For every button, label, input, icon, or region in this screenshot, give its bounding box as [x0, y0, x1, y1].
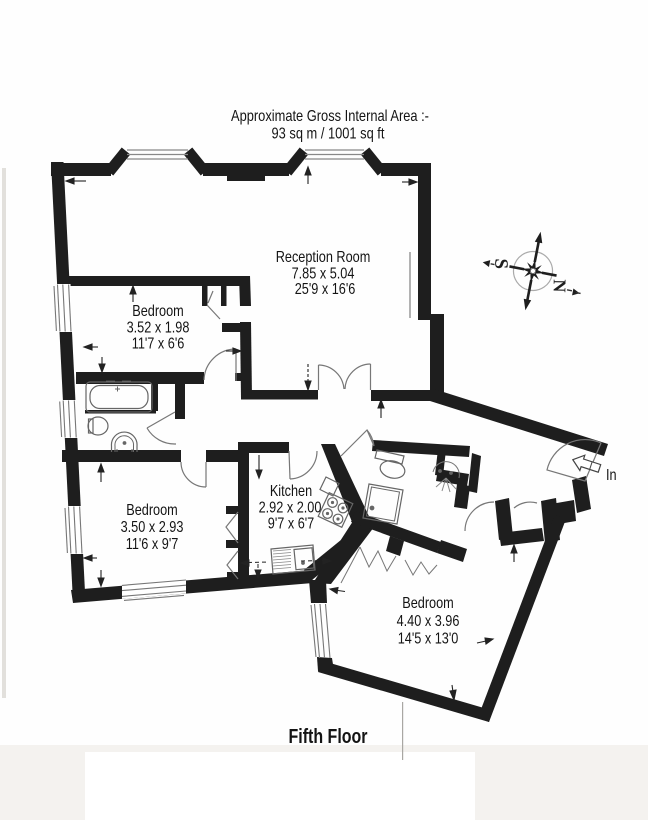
svg-text:In: In: [606, 467, 617, 484]
svg-text:14'5 x 13'0: 14'5 x 13'0: [398, 630, 459, 647]
svg-text:93 sq m / 1001 sq ft: 93 sq m / 1001 sq ft: [272, 125, 385, 142]
svg-text:Fifth Floor: Fifth Floor: [288, 724, 367, 747]
svg-text:3.50 x 2.93: 3.50 x 2.93: [121, 519, 184, 536]
svg-text:N: N: [550, 279, 570, 292]
svg-text:Reception Room: Reception Room: [276, 249, 371, 266]
svg-text:Bedroom: Bedroom: [402, 595, 454, 612]
svg-text:25'9 x 16'6: 25'9 x 16'6: [295, 281, 356, 298]
svg-text:11'7 x 6'6: 11'7 x 6'6: [132, 335, 185, 352]
svg-text:3.52 x 1.98: 3.52 x 1.98: [127, 319, 190, 336]
svg-text:Approximate Gross Internal Are: Approximate Gross Internal Area :-: [231, 108, 429, 125]
svg-text:Kitchen: Kitchen: [270, 483, 312, 500]
svg-text:2.92 x 2.00: 2.92 x 2.00: [259, 499, 322, 516]
svg-text:11'6 x 9'7: 11'6 x 9'7: [126, 536, 179, 553]
svg-text:4.40 x 3.96: 4.40 x 3.96: [397, 613, 460, 630]
svg-text:Bedroom: Bedroom: [126, 502, 178, 519]
svg-text:9'7 x 6'7: 9'7 x 6'7: [268, 515, 315, 532]
svg-text:Bedroom: Bedroom: [132, 303, 184, 320]
svg-text:S: S: [490, 258, 511, 269]
